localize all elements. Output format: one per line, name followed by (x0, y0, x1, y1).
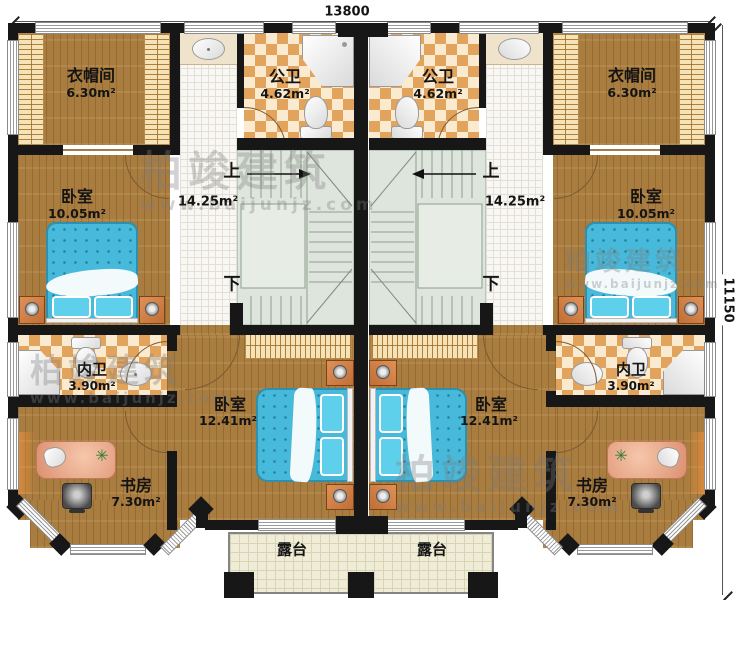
wall (8, 145, 63, 155)
nightstand-lamp (25, 302, 39, 316)
window (7, 342, 19, 397)
label-cloakroom: 衣帽间 (608, 68, 656, 84)
wall (205, 520, 258, 530)
label-stair-up: 上 (483, 164, 500, 181)
label-study-area: 7.30m² (567, 496, 616, 509)
toilet-bowl (395, 96, 419, 129)
bay-wall-block (196, 510, 208, 528)
label-public-bath-area: 4.62m² (260, 88, 309, 101)
wall (369, 325, 486, 335)
hall-bedroom-threshold (486, 325, 543, 335)
floorplan-page: 13800 11150 (0, 0, 750, 666)
label-bedroom-small: 卧室 (61, 189, 93, 205)
watermark-text: 柏竣建筑 (30, 352, 231, 390)
wardrobe (679, 33, 705, 145)
party-wall-terrace-block (336, 516, 388, 534)
bed-headboard (347, 388, 353, 482)
label-study-area: 7.30m² (111, 496, 160, 509)
label-stair-area: 14.25m² (485, 196, 545, 209)
wall (479, 33, 486, 108)
label-stair-up: 上 (224, 164, 241, 181)
bay-window (577, 544, 653, 555)
window-light-glow (687, 432, 705, 494)
wall (543, 33, 553, 155)
window (184, 22, 264, 34)
label-inner-bath-area: 3.90m² (607, 380, 654, 392)
nightstand-lamp (376, 365, 390, 379)
monitor-stand (638, 509, 654, 513)
nightstand-lamp (376, 489, 390, 503)
wall (543, 325, 715, 335)
wall (660, 145, 715, 155)
wall (167, 335, 177, 351)
window (7, 40, 19, 135)
wall (167, 451, 177, 530)
label-bedroom-small-area: 10.05m² (48, 208, 106, 221)
bed-pillow (379, 394, 403, 433)
terrace-pillar (468, 572, 498, 598)
bed-pillow (632, 296, 671, 318)
party-wall-top-block (338, 23, 388, 37)
watermark-url: www.baijunjz.com (30, 390, 231, 407)
watermark-text: 柏竣建筑 (565, 248, 720, 278)
bed-pillow (320, 437, 344, 476)
label-bedroom-large: 卧室 (214, 397, 246, 413)
label-bedroom-small-area: 10.05m² (617, 208, 675, 221)
watermark-text: 柏竣建筑 (140, 148, 378, 196)
label-stair-area: 14.25m² (178, 196, 238, 209)
label-inner-bath: 内卫 (77, 363, 107, 378)
bed-pillow (590, 296, 629, 318)
label-bedroom-small: 卧室 (630, 189, 662, 205)
window (35, 22, 161, 34)
bed-pillow (320, 394, 344, 433)
bed-pillow (94, 296, 133, 318)
window (704, 342, 716, 397)
label-inner-bath: 内卫 (616, 363, 646, 378)
nightstand-lamp (333, 365, 347, 379)
sink-basin (498, 38, 531, 60)
wardrobe (245, 334, 352, 359)
label-stair-down: 下 (224, 277, 241, 294)
nightstand-lamp (333, 489, 347, 503)
window (7, 418, 19, 490)
computer-monitor (62, 483, 92, 509)
staircase (369, 150, 486, 325)
terrace-door (258, 519, 336, 531)
wall (8, 325, 180, 335)
right-dimension-label: 11150 (722, 274, 735, 325)
label-cloakroom-area: 6.30m² (66, 87, 115, 100)
title-block: 二层平面图1:100 本层建筑面积：139.84m² 层高：3.0m 柏竣建筑 … (0, 600, 750, 666)
bay-window (70, 544, 146, 555)
watermark: 柏竣建筑 www.baijunjz.com (565, 248, 720, 292)
wall (543, 145, 590, 155)
monitor-stand (69, 509, 85, 513)
label-terrace: 露台 (277, 543, 307, 558)
wall (237, 33, 244, 108)
wall (369, 138, 486, 150)
wall (546, 395, 715, 407)
bed-headboard (46, 318, 138, 323)
window (704, 40, 716, 135)
window (387, 22, 431, 34)
label-cloakroom-area: 6.30m² (607, 87, 656, 100)
label-bedroom-large-area: 12.41m² (199, 415, 257, 428)
shower-head-dot (342, 42, 347, 47)
nightstand-lamp (684, 302, 698, 316)
wall (465, 520, 518, 530)
wall (170, 33, 180, 155)
cased-opening (590, 149, 660, 151)
window (292, 22, 336, 34)
watermark-url: www.baijunjz.com (140, 196, 378, 216)
label-public-bath: 公卫 (269, 69, 301, 85)
window-light-glow (18, 432, 36, 494)
label-cloakroom: 衣帽间 (67, 68, 115, 84)
label-bedroom-large-area: 12.41m² (460, 415, 518, 428)
label-bedroom-large: 卧室 (475, 397, 507, 413)
nightstand-lamp (145, 302, 159, 316)
sink-drain (207, 48, 210, 51)
window (7, 222, 19, 318)
nightstand-lamp (564, 302, 578, 316)
terrace-pillar (224, 572, 254, 598)
wardrobe (144, 33, 170, 145)
hall-bedroom-threshold (180, 325, 237, 335)
label-public-bath-area: 4.62m² (413, 88, 462, 101)
watermark: 柏竣建筑 www.baijunjz.com (30, 352, 231, 407)
party-wall (354, 25, 368, 534)
label-terrace: 露台 (417, 543, 447, 558)
computer-monitor (631, 483, 661, 509)
label-study: 书房 (576, 478, 608, 494)
window (562, 22, 688, 34)
wardrobe (371, 334, 478, 359)
label-stair-down: 下 (483, 277, 500, 294)
toilet-bowl (304, 96, 328, 129)
cased-opening (63, 149, 133, 151)
wardrobe (18, 33, 44, 145)
wall (546, 335, 556, 351)
label-study: 书房 (120, 478, 152, 494)
window (704, 418, 716, 490)
terrace-pillar (348, 572, 374, 598)
bed-headboard (585, 318, 677, 323)
watermark: 柏竣建筑 www.baijunjz.com (140, 148, 378, 216)
window (459, 22, 539, 34)
label-public-bath: 公卫 (422, 69, 454, 85)
watermark-url: www.baijunjz.com (565, 278, 720, 292)
potted-plant: ✳ (95, 448, 108, 464)
bed-headboard (370, 388, 376, 482)
bed-pillow (52, 296, 91, 318)
terrace-door (387, 519, 465, 531)
wardrobe (553, 33, 579, 145)
wall (237, 325, 354, 335)
label-inner-bath-area: 3.90m² (68, 380, 115, 392)
